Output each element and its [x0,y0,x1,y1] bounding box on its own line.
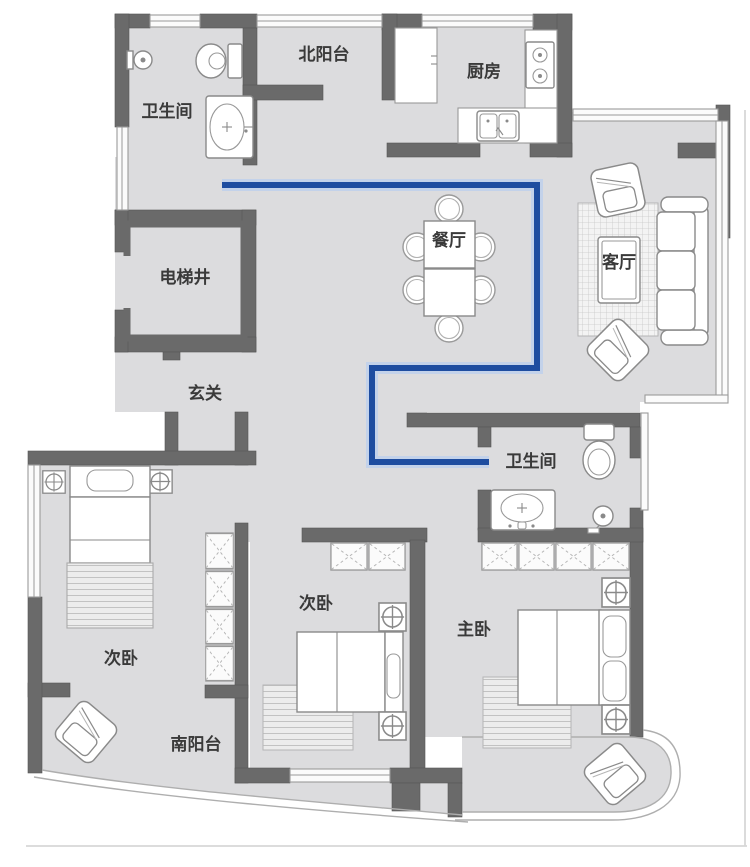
wall [630,508,643,737]
wall [235,523,248,783]
armchair [590,162,647,219]
wardrobe-cell [556,543,591,570]
room-label-south-balcony: 南阳台 [171,734,222,754]
floor [235,412,427,542]
wall [302,528,427,542]
room-label-master: 主卧 [457,619,491,639]
floor-plan: 卫生间 北阳台 厨房 餐厅 客厅 电梯井 玄关 卫生间 次卧 次卧 主卧 南阳台 [0,0,750,867]
toilet-icon [209,53,225,69]
room-label-bathroom-south: 卫生间 [506,451,557,471]
wall-elevator [163,352,180,360]
wall [115,14,129,127]
wardrobe-cell [331,543,367,570]
room-label-bedroom-middle: 次卧 [299,593,333,613]
nightstand-lamp [602,578,630,607]
shower-icon [127,51,133,69]
toilet-icon [584,424,614,440]
bed [297,632,403,712]
elevator-inner-gap [120,256,131,308]
room-label-elevator: 电梯井 [160,267,211,287]
wardrobe-cell [206,646,234,681]
pillow [603,616,626,657]
pillow [603,661,626,701]
wardrobe-cell [369,543,405,570]
wall [392,783,420,811]
window [645,395,728,403]
room-label-north-balcony: 北阳台 [299,44,350,64]
wall [478,427,491,447]
window [641,413,648,510]
wall [28,597,42,773]
fridge-icon [395,28,437,103]
wardrobe-cell [206,609,234,644]
wall [448,783,462,817]
wardrobe-cell [593,543,629,570]
wall [478,490,491,530]
room-label-dining: 餐厅 [432,230,466,250]
wall [28,451,256,465]
wall [530,143,572,157]
sofa [657,197,708,345]
wardrobe-cell [206,571,234,606]
room-label-bathroom-north: 卫生间 [142,101,193,121]
wall [235,768,290,783]
dining-chair [435,314,463,342]
room-label-kitchen: 厨房 [467,61,501,81]
wall [205,685,248,698]
wall [557,14,572,157]
wardrobe-cell [519,543,554,570]
room-label-entrance: 玄关 [188,383,222,403]
nightstand-lamp [148,470,172,493]
toilet-icon [228,44,242,78]
pillow [387,654,400,698]
bed [67,466,153,628]
dining-table [424,269,475,316]
sink-icon [518,522,526,529]
sink-icon [499,114,516,138]
wardrobe-cell [206,533,234,568]
wall [243,85,323,100]
bed [518,610,630,705]
nightstand-lamp [43,471,65,493]
dining-chair [435,195,463,223]
wall [390,768,462,783]
nightstand-lamp [602,705,630,734]
sink-icon [480,114,497,138]
wall [410,540,425,768]
bed-blanket [67,563,153,628]
wall [200,14,257,28]
nightstand-lamp [379,712,406,740]
nightstand-lamp [379,603,406,631]
room-label-bedroom-left: 次卧 [104,648,138,668]
floor-plan-canvas: 卫生间 北阳台 厨房 餐厅 客厅 电梯井 玄关 卫生间 次卧 次卧 主卧 南阳台 [0,0,750,867]
wardrobe-cell [482,543,517,570]
wall [387,143,480,157]
pillow [87,470,133,491]
toilet-icon [588,449,610,475]
room-label-living: 客厅 [601,252,636,272]
